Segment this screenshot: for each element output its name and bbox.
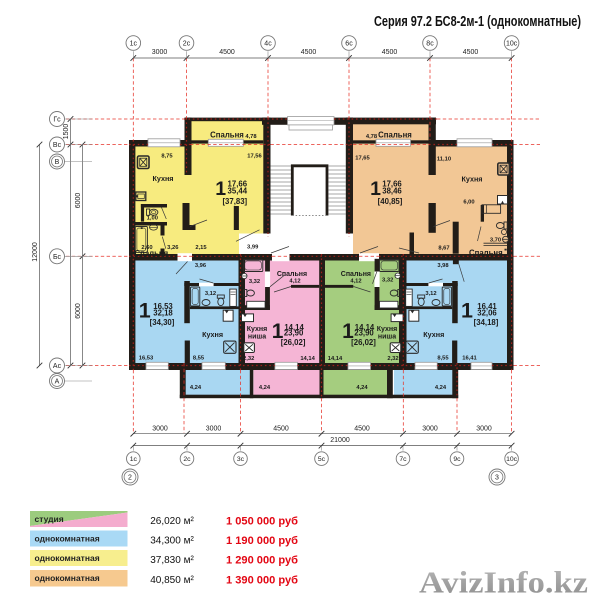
svg-text:AvizInfo.kz: AvizInfo.kz — [419, 565, 588, 600]
svg-text:ниша: ниша — [248, 334, 266, 341]
svg-text:[34,30]: [34,30] — [150, 318, 175, 327]
svg-text:6000: 6000 — [75, 303, 82, 319]
svg-text:6,00: 6,00 — [463, 200, 474, 206]
svg-text:3,12: 3,12 — [205, 291, 216, 297]
svg-text:[37,83]: [37,83] — [222, 197, 247, 206]
svg-text:[34,18]: [34,18] — [474, 318, 499, 327]
svg-text:Спальня: Спальня — [210, 131, 244, 140]
svg-text:32,18: 32,18 — [153, 308, 173, 317]
svg-text:2,32: 2,32 — [243, 356, 254, 362]
svg-text:10с: 10с — [506, 456, 518, 463]
svg-text:2: 2 — [128, 475, 132, 482]
svg-text:4,78: 4,78 — [366, 134, 378, 140]
svg-text:Кухня: Кухня — [247, 326, 267, 333]
svg-text:4500: 4500 — [219, 49, 235, 56]
svg-text:Бс: Бс — [53, 254, 62, 261]
svg-text:2с: 2с — [183, 456, 191, 463]
svg-text:4,24: 4,24 — [435, 385, 447, 391]
svg-text:8,55: 8,55 — [437, 356, 449, 362]
svg-text:4500: 4500 — [301, 49, 317, 56]
svg-text:4,78: 4,78 — [245, 134, 257, 140]
svg-text:Ас: Ас — [53, 363, 62, 370]
svg-text:[26,02]: [26,02] — [281, 338, 306, 347]
svg-text:А: А — [55, 379, 60, 386]
svg-text:однокомнатная: однокомнатная — [35, 533, 100, 543]
svg-text:17,65: 17,65 — [355, 156, 370, 162]
svg-text:3,98: 3,98 — [437, 263, 449, 269]
svg-text:Спальня: Спальня — [469, 249, 503, 258]
svg-text:21000: 21000 — [330, 437, 350, 444]
svg-text:9с: 9с — [453, 456, 461, 463]
svg-text:2,15: 2,15 — [195, 245, 207, 251]
svg-text:1 050 000 руб: 1 050 000 руб — [226, 516, 298, 528]
svg-text:4500: 4500 — [273, 426, 289, 433]
svg-text:3: 3 — [495, 475, 499, 482]
svg-text:[40,85]: [40,85] — [378, 197, 403, 206]
svg-text:3,99: 3,99 — [247, 245, 259, 251]
svg-text:3,12: 3,12 — [425, 291, 436, 297]
svg-text:1,00: 1,00 — [147, 216, 158, 222]
svg-text:однокомнатная: однокомнатная — [35, 553, 100, 563]
svg-text:3,70: 3,70 — [490, 238, 501, 244]
svg-text:4500: 4500 — [382, 49, 398, 56]
svg-text:ниша: ниша — [378, 334, 396, 341]
svg-text:8,55: 8,55 — [193, 356, 205, 362]
svg-text:Кухня: Кухня — [461, 175, 482, 184]
svg-text:8с: 8с — [426, 41, 434, 48]
svg-text:23,90: 23,90 — [284, 329, 304, 338]
svg-text:[26,02]: [26,02] — [351, 338, 376, 347]
svg-text:3000: 3000 — [152, 426, 168, 433]
svg-text:Спальня: Спальня — [277, 271, 307, 278]
svg-text:3,32: 3,32 — [249, 279, 260, 285]
svg-text:Спальня: Спальня — [135, 249, 169, 258]
svg-text:В: В — [55, 159, 60, 166]
svg-text:2,32: 2,32 — [387, 356, 398, 362]
svg-text:23,90: 23,90 — [354, 329, 374, 338]
svg-text:6с: 6с — [345, 41, 353, 48]
svg-text:35,44: 35,44 — [228, 187, 248, 196]
svg-text:4,24: 4,24 — [190, 385, 202, 391]
svg-text:5с: 5с — [318, 456, 326, 463]
svg-text:Серия 97.2 БС8-2м-1 (однокомна: Серия 97.2 БС8-2м-1 (однокомнатные) — [374, 13, 581, 30]
svg-text:3000: 3000 — [206, 426, 222, 433]
svg-text:3000: 3000 — [422, 426, 438, 433]
svg-text:Кухня: Кухня — [423, 330, 444, 339]
svg-text:студия: студия — [35, 514, 64, 524]
svg-text:3,26: 3,26 — [167, 245, 179, 251]
svg-text:3000: 3000 — [476, 426, 492, 433]
svg-text:10с: 10с — [506, 41, 518, 48]
svg-text:17,56: 17,56 — [247, 154, 262, 160]
svg-text:38,46: 38,46 — [382, 187, 402, 196]
svg-text:37,830 м²: 37,830 м² — [150, 555, 194, 566]
svg-text:Кухня: Кухня — [377, 326, 397, 333]
svg-text:4500: 4500 — [354, 426, 370, 433]
svg-text:1с: 1с — [130, 41, 138, 48]
svg-text:3000: 3000 — [152, 49, 168, 56]
svg-text:8,67: 8,67 — [438, 246, 449, 252]
svg-text:1с: 1с — [130, 456, 138, 463]
svg-text:14,14: 14,14 — [300, 356, 315, 362]
svg-text:4,12: 4,12 — [350, 279, 361, 285]
svg-text:1 290 000 руб: 1 290 000 руб — [226, 555, 298, 567]
svg-text:3с: 3с — [237, 456, 245, 463]
svg-text:3,96: 3,96 — [195, 263, 207, 269]
svg-text:14,14: 14,14 — [328, 356, 343, 362]
svg-text:1 190 000 руб: 1 190 000 руб — [226, 535, 298, 547]
svg-text:однокомнатная: однокомнатная — [35, 573, 100, 583]
svg-text:Гс: Гс — [53, 117, 61, 124]
svg-text:3,32: 3,32 — [382, 278, 393, 284]
svg-text:4,24: 4,24 — [259, 385, 271, 391]
svg-text:Спальня: Спальня — [341, 271, 371, 278]
svg-text:11,10: 11,10 — [437, 157, 451, 163]
svg-text:16,41: 16,41 — [462, 356, 477, 362]
svg-text:32,06: 32,06 — [477, 308, 497, 317]
svg-text:Кухня: Кухня — [202, 330, 223, 339]
svg-text:2с: 2с — [183, 41, 191, 48]
svg-text:4500: 4500 — [463, 49, 479, 56]
svg-text:6000: 6000 — [75, 193, 82, 209]
svg-text:1: 1 — [461, 299, 473, 323]
svg-text:4с: 4с — [264, 41, 272, 48]
svg-text:12000: 12000 — [32, 242, 39, 262]
svg-text:Кухня: Кухня — [152, 174, 173, 183]
svg-text:26,020 м²: 26,020 м² — [150, 516, 194, 527]
svg-text:7с: 7с — [399, 456, 407, 463]
svg-text:1 390 000 руб: 1 390 000 руб — [226, 575, 298, 587]
svg-text:16,53: 16,53 — [139, 356, 154, 362]
svg-text:1500: 1500 — [63, 124, 70, 140]
svg-text:4,12: 4,12 — [289, 279, 300, 285]
svg-text:Вс: Вс — [53, 142, 62, 149]
svg-text:4,24: 4,24 — [356, 385, 368, 391]
svg-text:Спальня: Спальня — [378, 131, 412, 140]
svg-text:40,850 м²: 40,850 м² — [150, 575, 194, 586]
svg-text:34,300 м²: 34,300 м² — [150, 536, 194, 547]
svg-text:8,75: 8,75 — [161, 154, 173, 160]
